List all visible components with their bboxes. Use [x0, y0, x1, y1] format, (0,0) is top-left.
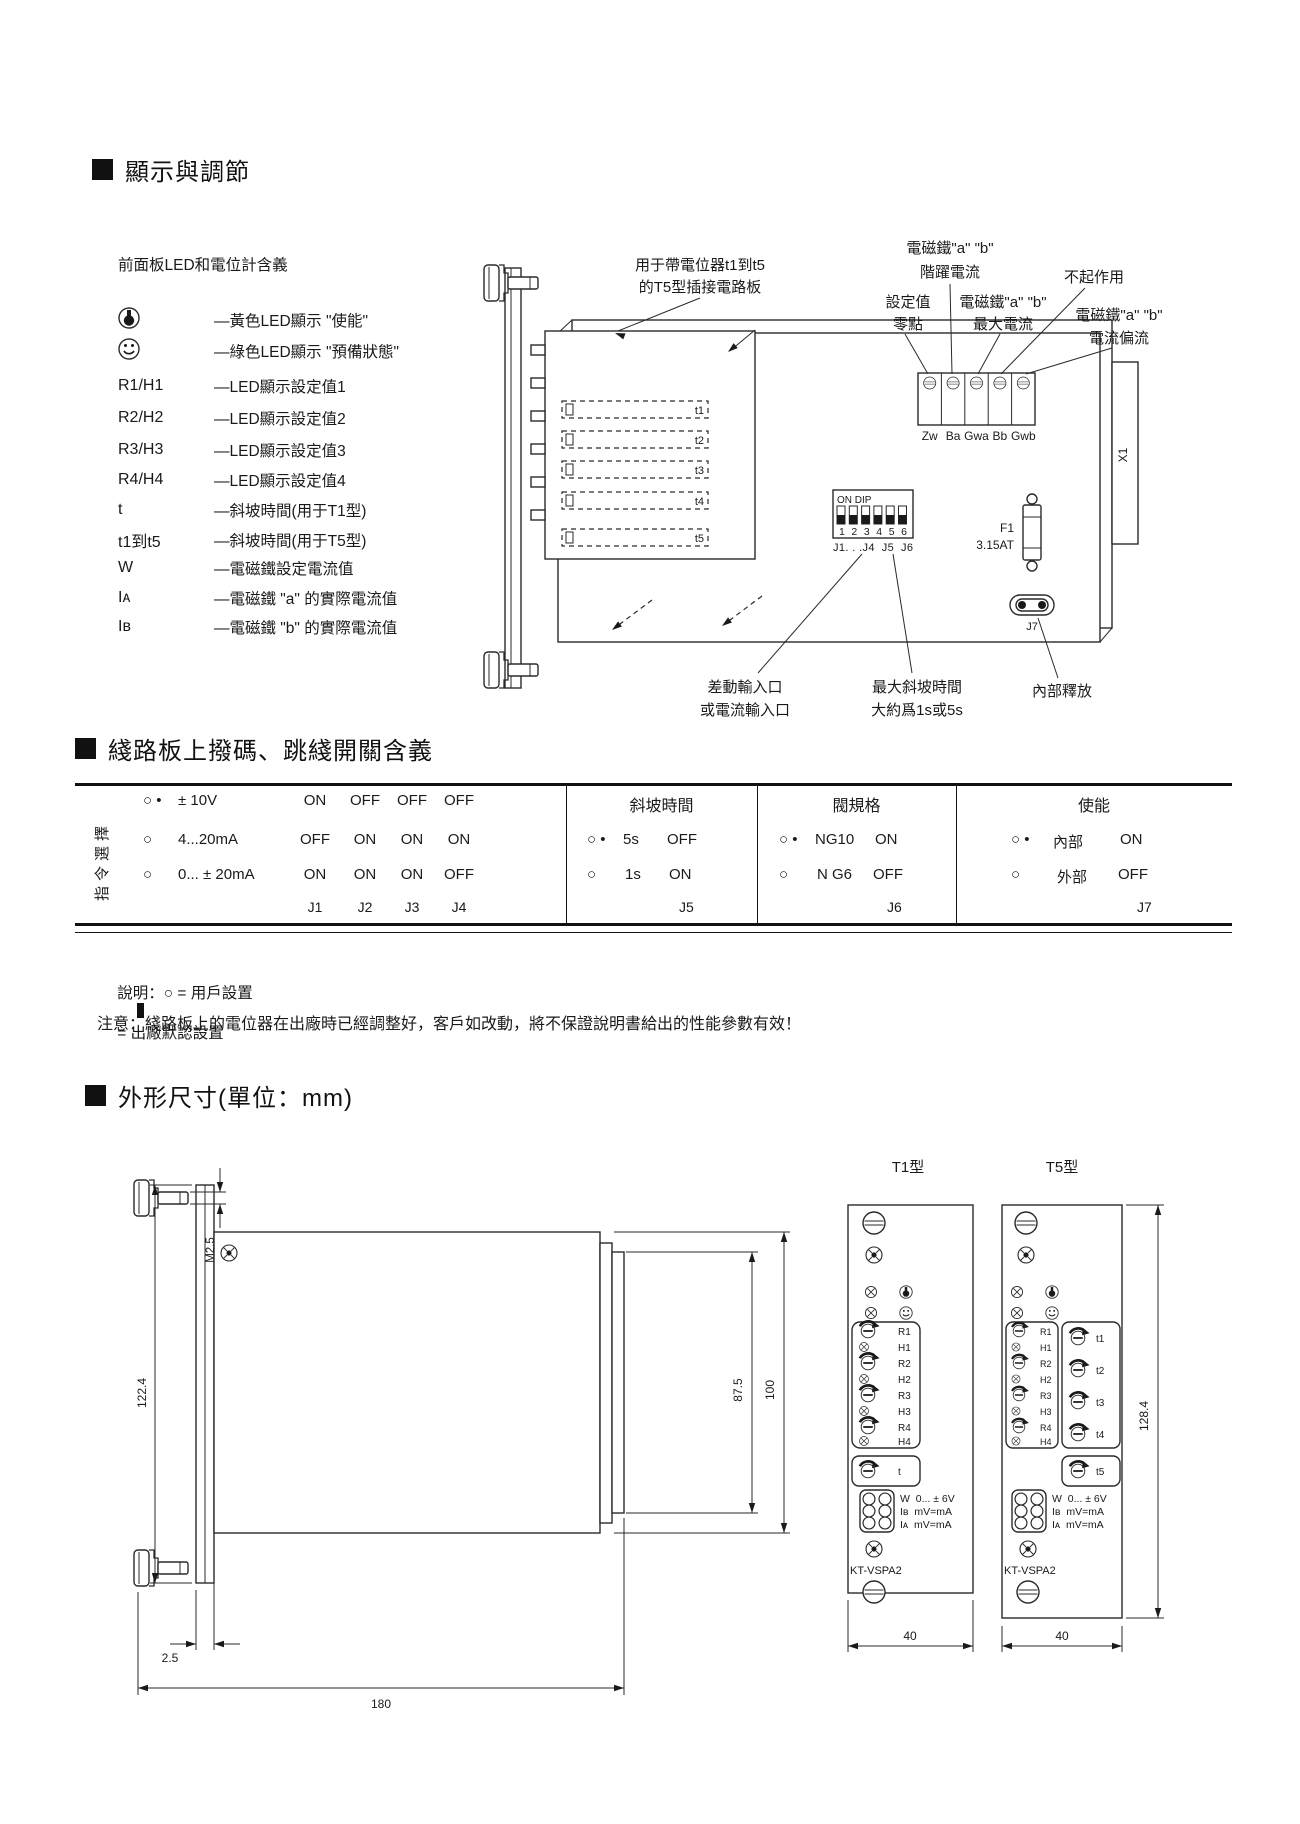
annotation-input-line1: 差動輸入口: [707, 679, 782, 696]
height-dim-label: 122.4: [135, 1378, 149, 1408]
row-value: ON: [1120, 831, 1143, 848]
fuse-name: F1: [1000, 521, 1014, 535]
row-value: OFF: [873, 866, 903, 883]
annotation-bias-line2: 電流偏流: [1089, 330, 1149, 347]
j2-label: J2: [340, 899, 390, 915]
t5-panel: T5型 R1 H1 R2 H2 R3 H3 R4 H4 t1 t2 t3 t4 …: [1002, 1159, 1164, 1652]
mount-bracket-bottom: [134, 1550, 188, 1586]
t2-label: t2: [695, 435, 704, 447]
phillips-screw-icon: [1020, 1541, 1036, 1557]
j1-value: ON: [290, 866, 340, 883]
phillips-screw-icon: [866, 1541, 882, 1557]
slot-screw-icon: [1017, 1581, 1039, 1603]
row-marker: ○ •: [779, 831, 797, 848]
section-square-icon: [92, 159, 113, 180]
dim-100: 100: [614, 1232, 790, 1533]
legend-row: R2/H2 —LED顯示設定值2: [118, 406, 346, 430]
row-value: OFF: [1118, 866, 1148, 883]
pot-row-label: R4: [1040, 1423, 1052, 1433]
row-value: OFF: [667, 831, 697, 848]
model-label: KT-VSPA2: [850, 1565, 902, 1577]
pot-gwb-label: Gwb: [1011, 429, 1036, 443]
dim-40-t5: 40: [1002, 1626, 1122, 1652]
led-icon: [865, 1307, 876, 1318]
legend-row: Iᴀ —電磁鐵 "a" 的實際電流值: [118, 586, 397, 610]
t1-title: T1型: [892, 1159, 925, 1176]
t1-width-label: 40: [903, 1629, 917, 1643]
section-square-icon: [75, 738, 96, 759]
pot-row-label: R2: [1040, 1359, 1052, 1369]
row-marker: ○ •: [143, 792, 161, 809]
pot-row-label: H4: [898, 1437, 911, 1448]
j1-value: OFF: [290, 831, 340, 848]
t-pot-label: t3: [1096, 1398, 1105, 1409]
row-marker: ○: [587, 866, 596, 883]
t3-label: t3: [695, 465, 704, 477]
phillips-screw-icon: [866, 1247, 882, 1263]
j4-value: ON: [434, 831, 484, 848]
pot-gwa-label: Gwa: [964, 429, 989, 443]
j4-value: OFF: [434, 792, 484, 809]
annotation-zero-line1: 設定值: [885, 294, 930, 311]
x1-connector: X1: [1112, 362, 1138, 544]
depth-dim-label: 180: [371, 1697, 391, 1711]
table-side-label: 指令選擇: [91, 789, 112, 901]
j7-label: J7: [1137, 899, 1152, 915]
ramp-time-header: 斜坡時間: [566, 792, 757, 816]
row-label: 5s: [623, 831, 639, 848]
pot-row-label: H4: [1040, 1437, 1052, 1447]
side-view: 122.4 M2.5 87.5: [134, 1168, 790, 1711]
annotation-ramp-line1: 最大斜坡時間: [872, 679, 962, 696]
slot-screw-icon: [863, 1581, 885, 1603]
led-icon: [860, 1375, 869, 1384]
phillips-screw-icon: [1018, 1247, 1034, 1263]
jack-label-ib: Iʙ mV=mA: [900, 1506, 952, 1518]
jack-label-ia: Iᴀ mV=mA: [900, 1519, 952, 1531]
pot-block: Zw Ba Gwa Bb Gwb: [918, 373, 1036, 443]
row-label: 0... ± 20mA: [178, 866, 255, 883]
annotation-noeffect: 不起作用: [1064, 269, 1124, 286]
dip-numbers: 1 2 3 4 5 6: [839, 526, 907, 538]
section-dip-header: 綫路板上撥碼、跳綫開關含義: [75, 731, 433, 766]
dim-40-t1: 40: [848, 1600, 973, 1652]
t-pot-label: t4: [1096, 1430, 1105, 1441]
pot-row-label: H1: [1040, 1343, 1052, 1353]
pot-ba-label: Ba: [946, 429, 961, 443]
valve-size-header: 閥規格: [757, 792, 956, 816]
dip-switch: ON DIP 1 2 3 4 5 6 J1. . .J4 J5 J6: [833, 490, 913, 554]
dim-87-5: 87.5: [626, 1252, 758, 1513]
legend-row: Iʙ —電磁鐵 "b" 的實際電流值: [118, 615, 397, 639]
warning-note: 注意：綫路板上的電位器在出廠時已經調整好，客戶如改動，將不保證說明書給出的性能參…: [97, 1010, 801, 1034]
j3-value: ON: [387, 866, 437, 883]
dimension-drawings: 122.4 M2.5 87.5: [60, 1100, 1240, 1800]
offset-dim-label: 2.5: [162, 1651, 179, 1665]
j4-value: OFF: [434, 866, 484, 883]
legend-row: t —斜坡時間(用于T1型): [118, 498, 366, 522]
legend-title: 前面板LED和電位計含義: [118, 253, 288, 275]
pot-row-label: H3: [1040, 1407, 1052, 1417]
jack-label-w: W 0... ± 6V: [900, 1493, 955, 1505]
dim-122-4: 122.4: [135, 1185, 192, 1583]
jack-label-w: W 0... ± 6V: [1052, 1493, 1107, 1505]
annotation-max-line2: 最大電流: [973, 316, 1033, 333]
enable-led-icon: [900, 1286, 912, 1298]
pot-row-label: H2: [1040, 1375, 1052, 1385]
annotation-t5-board-line1: 用于帶電位器t1到t5: [635, 257, 765, 274]
legend-row: t1到t5 —斜坡時間(用于T5型): [118, 528, 366, 552]
section-dip-title: 綫路板上撥碼、跳綫開關含義: [108, 731, 433, 766]
t4-label: t4: [695, 496, 704, 508]
front-panel-edge: [484, 265, 538, 688]
pot-row-label: H2: [898, 1375, 911, 1386]
body-dim-label: 87.5: [731, 1378, 745, 1402]
j1-value: ON: [290, 792, 340, 809]
t1-panel: T1型 R1 H1 R2 H2 R3 H3 R4 H4: [848, 1159, 973, 1652]
model-label: KT-VSPA2: [1004, 1565, 1056, 1577]
pot-bb-label: Bb: [993, 429, 1008, 443]
row-label: ± 10V: [178, 792, 217, 809]
pot-row-label: R1: [898, 1327, 911, 1338]
annotation-max-line1: 電磁鐵"a" "b": [959, 293, 1046, 311]
j6-label: J6: [887, 899, 902, 915]
legend-row: W —電磁鐵設定電流值: [118, 556, 354, 580]
dip-on-label: ON DIP: [837, 495, 872, 506]
section-display-title: 顯示與調節: [125, 152, 250, 187]
led-icon: [860, 1437, 869, 1446]
section-display-header: 顯示與調節: [92, 152, 250, 187]
t-pot-label: t2: [1096, 1366, 1105, 1377]
j2-value: ON: [340, 831, 390, 848]
jack-label-ia: Iᴀ mV=mA: [1052, 1519, 1104, 1531]
pot-row-label: H3: [898, 1407, 911, 1418]
led-icon: [860, 1343, 869, 1352]
row-label: 4...20mA: [178, 831, 238, 848]
row-marker: ○ •: [587, 831, 605, 848]
row-value: ON: [875, 831, 898, 848]
row-marker: ○ •: [1011, 831, 1029, 848]
annotation-step-line1: 電磁鐵"a" "b": [906, 239, 993, 257]
t5-plugin-board: t1 t2 t3 t4 t5: [531, 331, 755, 559]
led-icon: [1011, 1307, 1022, 1318]
led-icon: [860, 1407, 869, 1416]
jumper-table: 指令選擇 ○ • ± 10V ON OFF OFF OFF ○ 4...20mA…: [75, 783, 1232, 935]
pot-row-label: R3: [898, 1391, 911, 1402]
row-marker: ○: [779, 866, 788, 883]
depth-height-dim-label: 100: [763, 1380, 777, 1400]
legend-row-ready: —綠色LED顯示 "預備狀態": [118, 339, 399, 363]
pot-row-label: R4: [898, 1423, 911, 1434]
annotation-step-line2: 階躍電流: [920, 264, 980, 281]
j4-label: J4: [434, 899, 484, 915]
pot-zw-label: Zw: [922, 429, 938, 443]
row-label: N G6: [817, 866, 852, 883]
j5-label: J5: [679, 899, 694, 915]
row-label: 1s: [625, 866, 641, 883]
t-pot-label: t1: [1096, 1334, 1105, 1345]
j3-value: ON: [387, 831, 437, 848]
annotation-zero-line2: 零點: [893, 316, 923, 333]
fuse-rating: 3.15AT: [976, 538, 1014, 552]
annotation-release: 內部釋放: [1032, 683, 1092, 700]
j2-value: OFF: [340, 792, 390, 809]
row-label: 內部: [1053, 831, 1083, 852]
j2-value: ON: [340, 866, 390, 883]
slot-screw-icon: [1015, 1212, 1037, 1234]
row-value: ON: [669, 866, 692, 883]
t5-label: t5: [695, 533, 704, 545]
t-pot-label: t: [898, 1467, 901, 1478]
t5-pot-label: t5: [1096, 1467, 1105, 1478]
pot-row-label: R3: [1040, 1391, 1052, 1401]
dip-jumper-labels: J1. . .J4 J5 J6: [833, 542, 913, 554]
j3-label: J3: [387, 899, 437, 915]
t5-height-label: 128.4: [1137, 1401, 1151, 1431]
pot-row-label: R1: [1040, 1327, 1052, 1337]
manual-page: 顯示與調節 前面板LED和電位計含義 —黃色LED顯示 "使能" —綠色LED顯…: [0, 0, 1300, 1824]
row-label: NG10: [815, 831, 854, 848]
j1-label: J1: [290, 899, 340, 915]
enable-header: 使能: [956, 792, 1232, 816]
t5-width-label: 40: [1055, 1629, 1069, 1643]
led-icon: [865, 1286, 876, 1297]
screw-dim-label: M2.5: [205, 1237, 217, 1263]
legend-row: R3/H3 —LED顯示設定值3: [118, 438, 346, 462]
legend-row-enable: —黃色LED顯示 "使能": [118, 308, 368, 332]
ready-led-icon: [1046, 1307, 1058, 1319]
enable-led-icon: [118, 307, 214, 334]
j3-value: OFF: [387, 792, 437, 809]
row-marker: ○: [143, 831, 152, 848]
ready-led-icon: [900, 1307, 912, 1319]
pot-row-label: H1: [898, 1343, 911, 1354]
board-diagram: X1 t1 t2: [470, 195, 1184, 745]
x1-label: X1: [1116, 447, 1130, 462]
jack-label-ib: Iʙ mV=mA: [1052, 1506, 1104, 1518]
annotation-ramp-line2: 大約爲1s或5s: [871, 702, 963, 719]
j7-label: J7: [1026, 621, 1038, 633]
slot-screw-icon: [863, 1212, 885, 1234]
row-marker: ○: [1011, 866, 1020, 883]
dim-128-4: 128.4: [1126, 1205, 1164, 1618]
t5-title: T5型: [1046, 1159, 1079, 1176]
legend-row: R1/H1 —LED顯示設定值1: [118, 374, 346, 398]
row-label: 外部: [1057, 866, 1087, 887]
annotation-t5-board-line2: 的T5型插接電路板: [639, 278, 762, 296]
led-icon: [1011, 1286, 1022, 1297]
legend-row: R4/H4 —LED顯示設定值4: [118, 468, 346, 492]
t1-label: t1: [695, 405, 704, 417]
ready-led-icon: [118, 338, 214, 365]
pot-row-label: R2: [898, 1359, 911, 1370]
user-setting-note: 說明：○ = 用戶設置: [117, 985, 253, 1002]
enable-led-icon: [1046, 1286, 1058, 1298]
annotation-bias-line1: 電磁鐵"a" "b": [1075, 306, 1162, 324]
row-marker: ○: [143, 866, 152, 883]
annotation-input-line2: 或電流輸入口: [700, 702, 790, 719]
phillips-screw-icon: [221, 1245, 237, 1261]
